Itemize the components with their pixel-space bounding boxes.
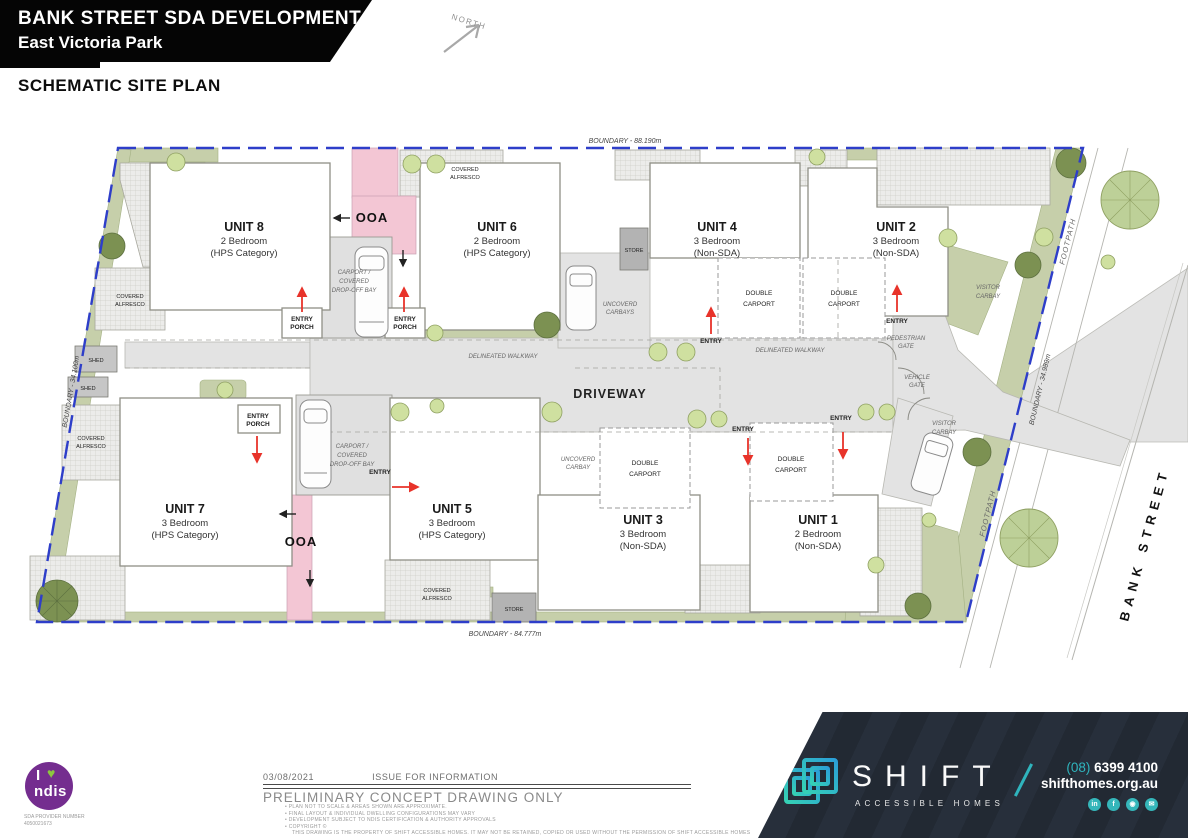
svg-text:DOUBLE: DOUBLE (831, 290, 858, 297)
svg-text:PORCH: PORCH (290, 324, 314, 331)
svg-text:(Non-SDA): (Non-SDA) (795, 541, 841, 552)
svg-text:(HPS Category): (HPS Category) (210, 248, 277, 259)
svg-text:(Non-SDA): (Non-SDA) (873, 248, 919, 259)
car-uncovered-carbay (566, 266, 596, 330)
ndis-logo-i: I (36, 767, 40, 784)
brand-slash (1014, 763, 1033, 796)
svg-text:VISITOR: VISITOR (932, 421, 957, 427)
social-icons: in f ◉ ✉ (1088, 798, 1158, 811)
ooa-bottom-label: OOA (285, 534, 318, 549)
svg-text:UNCOVERD: UNCOVERD (561, 457, 596, 463)
svg-text:CARPORT: CARPORT (828, 301, 860, 308)
svg-text:ENTRY: ENTRY (247, 413, 269, 420)
svg-text:CARPORT: CARPORT (775, 467, 807, 474)
svg-text:(HPS Category): (HPS Category) (463, 248, 530, 259)
facebook-icon[interactable]: f (1107, 798, 1120, 811)
walkway-label-2: DELINEATED WALKWAY (756, 348, 826, 354)
svg-text:DROP-OFF BAY: DROP-OFF BAY (332, 288, 377, 294)
bank-street-label: BANK STREET (1116, 466, 1171, 623)
svg-text:DOUBLE: DOUBLE (746, 290, 773, 297)
svg-text:SHED: SHED (88, 358, 103, 364)
svg-text:COVERED: COVERED (339, 279, 369, 285)
svg-text:COVERED: COVERED (451, 167, 478, 173)
svg-text:CARBAY: CARBAY (566, 465, 591, 471)
north-arrow-icon (444, 25, 479, 52)
drawing-title: SCHEMATIC SITE PLAN (18, 76, 221, 96)
svg-text:VISITOR: VISITOR (976, 285, 1001, 291)
title-banner: BANK STREET SDA DEVELOPMENT East Victori… (0, 0, 372, 62)
svg-text:GATE: GATE (909, 383, 926, 389)
svg-text:VEHICLE: VEHICLE (904, 375, 931, 381)
website-link[interactable]: shifthomes.org.au (1041, 776, 1158, 792)
svg-text:CARBAY: CARBAY (976, 294, 1001, 300)
svg-text:2 Bedroom: 2 Bedroom (474, 236, 521, 247)
boundary-top-label: BOUNDARY - 88.190m (589, 138, 662, 145)
driveway-label: DRIVEWAY (573, 387, 647, 401)
brand-tagline: ACCESSIBLE HOMES (855, 799, 1004, 808)
ndis-heart-icon: ♥ (47, 765, 55, 781)
svg-text:DROP-OFF BAY: DROP-OFF BAY (330, 462, 375, 468)
issue-date: 03/08/2021 (263, 772, 314, 782)
svg-text:PORCH: PORCH (246, 421, 270, 428)
svg-text:DOUBLE: DOUBLE (778, 456, 805, 463)
svg-text:3 Bedroom: 3 Bedroom (694, 236, 741, 247)
svg-text:UNIT 2: UNIT 2 (876, 220, 916, 234)
ndis-logo-name: ndis (34, 783, 67, 800)
svg-text:DOUBLE: DOUBLE (632, 460, 659, 467)
site-plan-page: UNIT 8 2 Bedroom (HPS Category) UNIT 6 2… (0, 0, 1188, 838)
unit3-label: UNIT 3 3 Bedroom (Non-SDA) (620, 513, 667, 552)
page-subtitle-location: East Victoria Park (18, 33, 162, 53)
boundary-bottom-label: BOUNDARY - 84.777m (469, 631, 542, 638)
svg-text:UNIT 4: UNIT 4 (697, 220, 737, 234)
svg-text:(HPS Category): (HPS Category) (151, 530, 218, 541)
svg-text:ENTRY: ENTRY (369, 469, 391, 476)
linkedin-icon[interactable]: in (1088, 798, 1101, 811)
svg-text:UNIT 5: UNIT 5 (432, 502, 472, 516)
svg-text:ALFRESCO: ALFRESCO (450, 175, 480, 181)
svg-text:(Non-SDA): (Non-SDA) (620, 541, 666, 552)
preliminary-note: PRELIMINARY CONCEPT DRAWING ONLY (263, 790, 564, 805)
shift-brand-banner: SHIFT ACCESSIBLE HOMES (08) 6399 4100 sh… (758, 712, 1188, 838)
instagram-icon[interactable]: ◉ (1126, 798, 1139, 811)
svg-text:ENTRY: ENTRY (830, 415, 852, 422)
svg-text:SHED: SHED (80, 386, 95, 392)
svg-text:ALFRESCO: ALFRESCO (76, 444, 106, 450)
svg-text:3 Bedroom: 3 Bedroom (429, 518, 476, 529)
svg-text:CARPORT: CARPORT (629, 471, 661, 478)
svg-text:COVERED: COVERED (116, 294, 143, 300)
svg-text:CARPORT: CARPORT (743, 301, 775, 308)
svg-text:UNCOVERD: UNCOVERD (603, 302, 638, 308)
issue-row: 03/08/2021 ISSUE FOR INFORMATION (263, 772, 498, 782)
svg-text:STORE: STORE (625, 248, 644, 254)
svg-text:(HPS Category): (HPS Category) (418, 530, 485, 541)
svg-text:COVERED: COVERED (337, 453, 367, 459)
svg-text:ENTRY: ENTRY (291, 316, 313, 323)
svg-text:UNIT 3: UNIT 3 (623, 513, 663, 527)
svg-text:PORCH: PORCH (393, 324, 417, 331)
unit2-label: UNIT 2 3 Bedroom (Non-SDA) (873, 220, 920, 259)
brand-name: SHIFT (852, 760, 1004, 794)
svg-text:(Non-SDA): (Non-SDA) (694, 248, 740, 259)
issue-status: ISSUE FOR INFORMATION (372, 772, 498, 782)
svg-text:ENTRY: ENTRY (700, 338, 722, 345)
svg-text:COVERED: COVERED (423, 588, 450, 594)
svg-text:3 Bedroom: 3 Bedroom (620, 529, 667, 540)
svg-text:UNIT 7: UNIT 7 (165, 502, 205, 516)
svg-text:ENTRY: ENTRY (394, 316, 416, 323)
divider-lines (263, 784, 691, 789)
svg-text:ENTRY: ENTRY (886, 318, 908, 325)
contact-block: (08) 6399 4100 shifthomes.org.au (1041, 760, 1158, 792)
svg-text:3 Bedroom: 3 Bedroom (162, 518, 209, 529)
drawing-notes: PLAN NOT TO SCALE & AREAS SHOWN ARE APPR… (285, 804, 750, 837)
svg-text:ALFRESCO: ALFRESCO (422, 596, 452, 602)
ndis-logo: I ♥ ndis (25, 762, 73, 810)
email-icon[interactable]: ✉ (1145, 798, 1158, 811)
svg-text:COVERED: COVERED (77, 436, 104, 442)
svg-text:PEDESTRIAN: PEDESTRIAN (887, 336, 926, 342)
unit4-label: UNIT 4 3 Bedroom (Non-SDA) (694, 220, 741, 259)
svg-text:UNIT 1: UNIT 1 (798, 513, 838, 527)
van-bottom (300, 400, 331, 488)
svg-text:2 Bedroom: 2 Bedroom (795, 529, 842, 540)
svg-text:GATE: GATE (898, 344, 915, 350)
svg-text:ALFRESCO: ALFRESCO (115, 302, 145, 308)
page-title: BANK STREET SDA DEVELOPMENT (18, 8, 361, 30)
svg-text:CARPORT /: CARPORT / (336, 444, 370, 450)
svg-text:ENTRY: ENTRY (732, 426, 754, 433)
phone-number[interactable]: (08) 6399 4100 (1041, 760, 1158, 776)
svg-text:UNIT 6: UNIT 6 (477, 220, 517, 234)
sda-provider-caption: SDA PROVIDER NUMBER 4050021673 (24, 814, 85, 828)
svg-text:STORE: STORE (505, 607, 524, 613)
unit1-label: UNIT 1 2 Bedroom (Non-SDA) (795, 513, 842, 552)
walkway-label-1: DELINEATED WALKWAY (469, 354, 539, 360)
svg-text:2 Bedroom: 2 Bedroom (221, 236, 268, 247)
svg-text:CARPORT /: CARPORT / (338, 270, 372, 276)
svg-text:3 Bedroom: 3 Bedroom (873, 236, 920, 247)
copyright-note: THIS DRAWING IS THE PROPERTY OF SHIFT AC… (285, 830, 750, 837)
north-label: NORTH (450, 12, 487, 31)
svg-text:UNIT 8: UNIT 8 (224, 220, 264, 234)
svg-text:CARBAY: CARBAY (932, 430, 957, 436)
title-banner-tab (0, 62, 100, 68)
ooa-top-label: OOA (356, 210, 389, 225)
svg-text:CARBAYS: CARBAYS (606, 310, 634, 316)
